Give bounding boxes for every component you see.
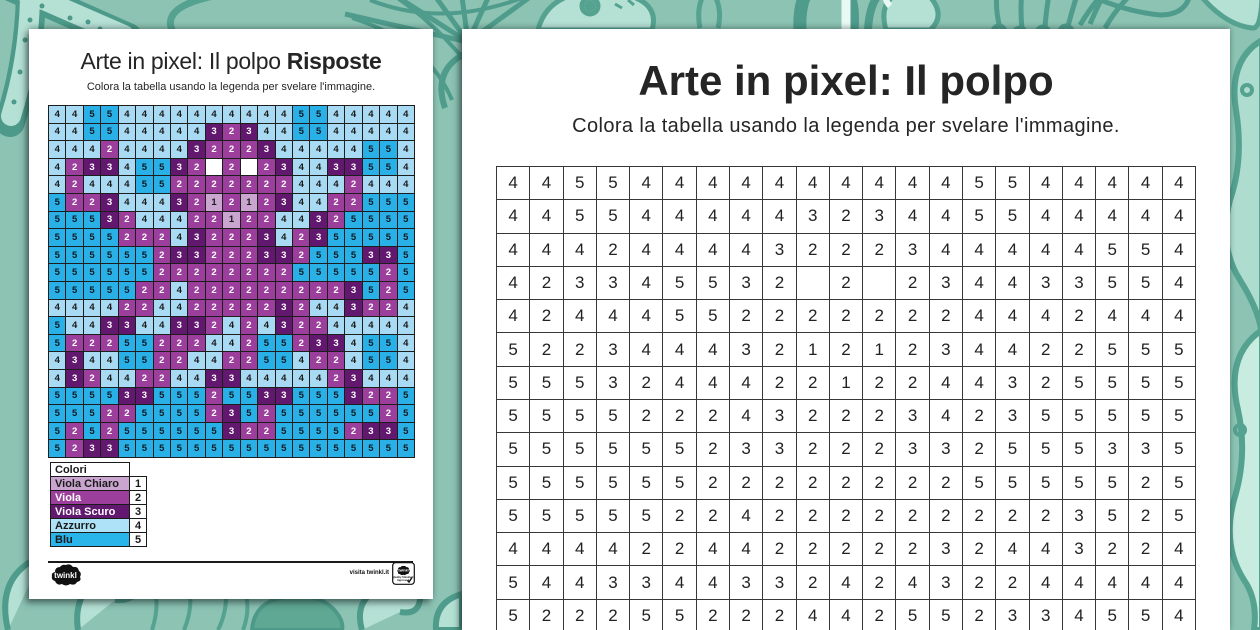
svg-text:twinkl: twinkl [54, 571, 77, 580]
svg-text:twinkl: twinkl [398, 569, 408, 573]
